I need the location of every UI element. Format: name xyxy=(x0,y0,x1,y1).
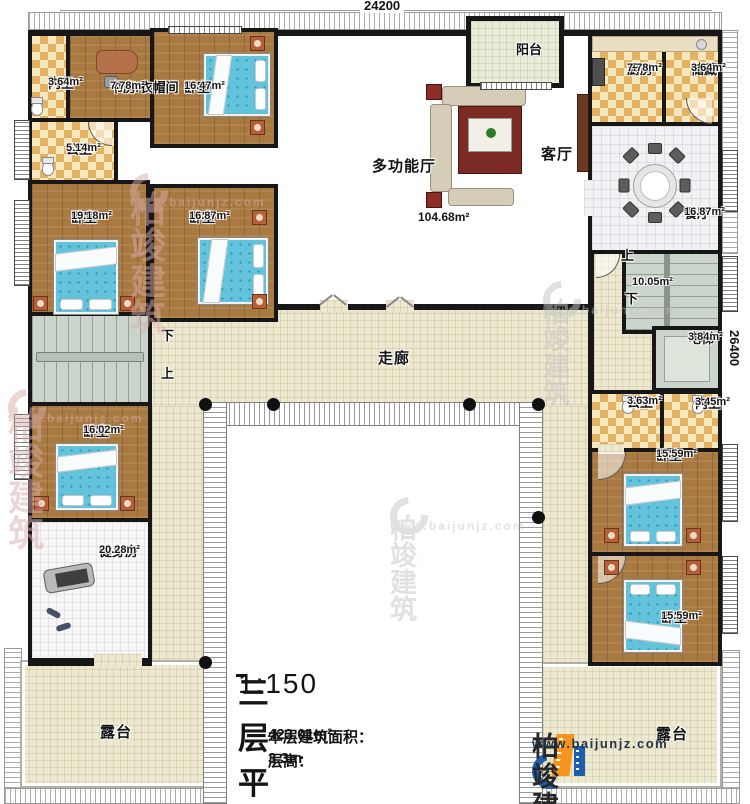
stair-left-handrail xyxy=(36,352,144,362)
nightstand xyxy=(120,496,135,511)
side-table xyxy=(426,192,442,208)
window xyxy=(168,26,242,34)
dimension-right: 26400 xyxy=(727,330,742,366)
courtyard-railing-top xyxy=(203,402,543,426)
sofa-left xyxy=(430,104,452,192)
nightstand xyxy=(686,560,701,575)
corridor-left-band xyxy=(152,406,205,666)
dining-chair xyxy=(648,143,662,154)
nightstand xyxy=(250,120,265,135)
toilet xyxy=(31,100,43,116)
column xyxy=(532,398,545,411)
stove xyxy=(592,58,605,86)
eave-terrace-right-side xyxy=(722,650,740,804)
dining-table-top xyxy=(640,171,670,201)
brand-website: www.baijunjz.com xyxy=(532,736,668,751)
nightstand xyxy=(604,560,619,575)
bed xyxy=(624,474,682,546)
dimension-top: 24200 xyxy=(360,0,404,13)
window-balcony xyxy=(480,82,552,90)
eave-top xyxy=(28,12,722,30)
column xyxy=(532,511,545,524)
nightstand xyxy=(34,496,49,511)
bed xyxy=(56,444,118,510)
column xyxy=(199,656,212,669)
eave-terrace-left-bottom xyxy=(4,788,228,804)
folding-door-icon xyxy=(387,296,413,308)
corridor-right-band xyxy=(543,406,588,668)
nightstand xyxy=(604,528,619,543)
bed xyxy=(54,240,118,314)
stair-right-handrail xyxy=(664,254,670,330)
desk xyxy=(96,50,138,74)
side-table xyxy=(426,84,442,100)
courtyard-railing-left xyxy=(203,402,227,804)
nightstand xyxy=(252,294,267,309)
sofa-bottom xyxy=(448,188,514,206)
column xyxy=(267,398,280,411)
door-opening-living-dining xyxy=(584,180,596,216)
window xyxy=(722,556,738,634)
folding-door-icon xyxy=(320,294,346,306)
drawing-title: 三层平面图 1:150 xyxy=(236,668,246,677)
kitchen-sink xyxy=(696,39,707,50)
window xyxy=(722,256,738,312)
plant-icon xyxy=(486,128,496,138)
nightstand xyxy=(250,36,265,51)
title-scale: 1:150 xyxy=(238,668,318,700)
window xyxy=(722,444,738,522)
nightstand xyxy=(686,528,701,543)
column xyxy=(463,398,476,411)
room-balcony xyxy=(466,16,564,88)
window xyxy=(14,120,30,180)
floor-plan: 内卫 3.64m² 书房/衣帽间7.78m² 卧室16.47m² 公卫5.14m… xyxy=(0,0,750,804)
tv-cabinet xyxy=(577,94,589,172)
column xyxy=(199,398,212,411)
window xyxy=(14,200,30,286)
nightstand xyxy=(252,210,267,225)
window xyxy=(14,414,30,480)
lobby-floor-2 xyxy=(594,330,652,392)
dining-chair xyxy=(680,179,691,193)
nightstand xyxy=(33,296,48,311)
nightstand xyxy=(120,296,135,311)
toilet xyxy=(42,160,54,176)
dining-chair xyxy=(619,179,630,193)
door-opening-gym-terrace xyxy=(94,654,142,666)
dining-chair xyxy=(648,212,662,223)
room-area: 3.64m² xyxy=(48,76,83,89)
window xyxy=(722,150,738,212)
